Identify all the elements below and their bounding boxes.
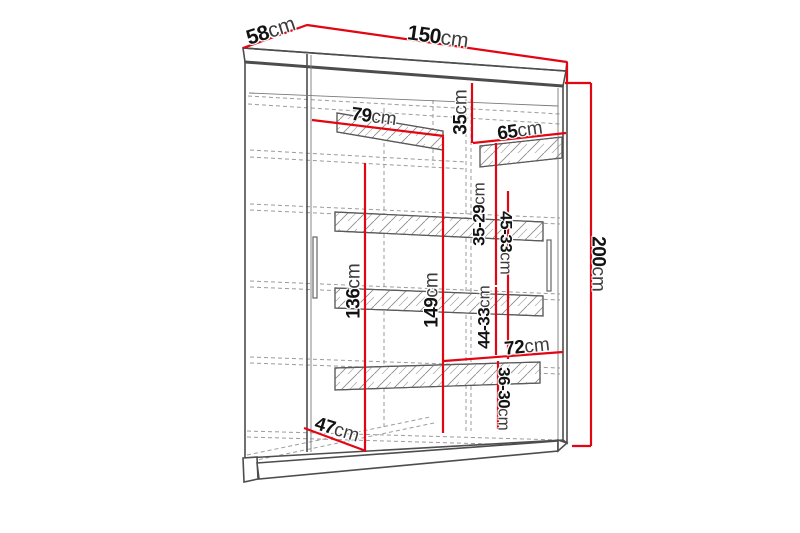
wardrobe-line-drawing: [0, 0, 800, 533]
wardrobe-diagram-image: 58cm 150cm 79cm 35cm 65cm 35-29cm 45-33c…: [0, 0, 800, 533]
left-door-handle: [313, 237, 317, 298]
right-door-handle: [547, 240, 551, 291]
dim-line-200: [565, 83, 591, 446]
left-foot: [243, 457, 258, 482]
carcass-fill-group: [243, 25, 567, 482]
